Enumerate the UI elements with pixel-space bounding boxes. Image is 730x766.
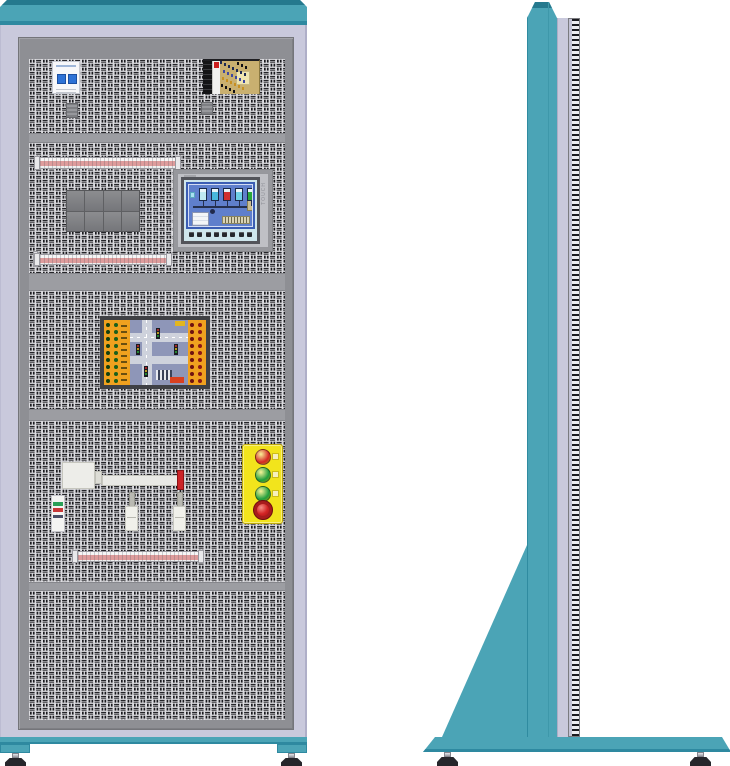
terminal-led-dot [106, 365, 110, 369]
terminal-led-dot [106, 351, 110, 355]
board-right-terminal-strip [188, 320, 206, 385]
leveling-foot-left [5, 758, 26, 766]
board-red-tag [170, 377, 184, 383]
din-connector-2 [201, 102, 213, 115]
psu-board [220, 61, 259, 94]
limit-switch-lever [129, 492, 135, 507]
traffic-light-icon [136, 344, 140, 355]
side-column [527, 2, 557, 738]
terminal-led-dot [198, 337, 202, 341]
touch-panel-hmi: TOUCH [177, 173, 269, 248]
traffic-trainer-board [100, 316, 210, 389]
terminal-strip-bottom [73, 551, 203, 562]
psu-component [243, 80, 245, 83]
traffic-light-icon [174, 344, 178, 355]
terminal-led-dot [114, 323, 118, 327]
psu-component [221, 84, 223, 87]
side-leveling-foot-left [437, 757, 458, 766]
hmi-side-label: TOUCH [261, 182, 267, 205]
breaker-toggle [57, 74, 66, 84]
psu-component [237, 62, 239, 65]
terminal-led-dot [198, 323, 202, 327]
signal-dot [137, 351, 139, 353]
cabinet-body: TOUCH [0, 25, 307, 737]
board-intersection-area [130, 320, 188, 385]
psu-component [224, 63, 226, 66]
corner-block-left [0, 744, 30, 753]
din-connector [66, 103, 78, 118]
terminal-led-dot [198, 358, 202, 362]
cabinet-top-cap [0, 0, 307, 25]
mimic-pump-icon [210, 209, 215, 214]
terminal-led-dot [190, 344, 194, 348]
button-label-window [272, 471, 279, 478]
terminal-led-dot [190, 372, 194, 376]
panel-rail [29, 133, 285, 143]
mounting-panel: TOUCH [29, 59, 285, 720]
perforation-edge-rungs [572, 19, 579, 736]
red-pushbutton [255, 449, 271, 465]
terminal-led-dot [198, 379, 202, 383]
psu-component [225, 86, 227, 89]
psu-component [230, 81, 232, 84]
panel-section-actuator [29, 421, 285, 582]
psu-component [241, 64, 243, 67]
switching-power-supply [203, 59, 260, 94]
leveling-foot-right [281, 758, 302, 766]
terminal-led-dot [198, 365, 202, 369]
contactor-cell [67, 191, 84, 211]
terminal-led-dot [190, 379, 194, 383]
terminal-led-dot [114, 344, 118, 348]
hmi-function-key [222, 232, 227, 237]
terminal-led-dot [190, 365, 194, 369]
traffic-light-icon [144, 366, 148, 377]
psu-component [228, 65, 230, 68]
terminal-led-dot [114, 365, 118, 369]
mimic-tank [211, 188, 219, 201]
cabinet-side-view [400, 0, 730, 766]
terminal-led-dot [114, 337, 118, 341]
terminal-led-dot [114, 351, 118, 355]
terminal-led-dot [198, 351, 202, 355]
terminal-led-dot [114, 372, 118, 376]
limit-switch-2 [173, 506, 186, 531]
signal-dot [145, 367, 147, 369]
side-leveling-screw-right [697, 752, 704, 757]
psu-component [236, 69, 238, 72]
estop-head [257, 504, 269, 516]
psu-component [235, 76, 237, 79]
breaker-toggle-2 [68, 74, 77, 84]
green-pushbutton [255, 467, 271, 483]
signal-dot [175, 345, 177, 347]
pushbutton-station [242, 444, 283, 524]
road-horizontal-2 [130, 356, 188, 364]
terminal-led-dot [106, 323, 110, 327]
psu-component [240, 71, 242, 74]
terminal-led-dot [190, 351, 194, 355]
leveling-screw-right [288, 753, 295, 758]
psu-component [234, 83, 236, 86]
mimic-tank [223, 188, 231, 201]
sensor-module [51, 495, 65, 532]
terminal-led-dot [114, 330, 118, 334]
psu-logo [214, 62, 219, 68]
mimic-pipe-line [193, 206, 253, 208]
mimic-detail-box [192, 212, 209, 226]
mimic-terminal-row [222, 216, 250, 224]
leveling-screw-left [12, 753, 19, 758]
terminal-led-dot [106, 330, 110, 334]
psu-component [222, 77, 224, 80]
panel-section-empty [29, 591, 285, 720]
traffic-light-icon [156, 328, 160, 339]
hmi-function-key [206, 232, 211, 237]
psu-component [220, 61, 222, 64]
psu-component [227, 72, 229, 75]
actuator-rod [102, 475, 179, 486]
actuator-end-marker [177, 470, 184, 490]
hmi-function-key [247, 232, 252, 237]
contactor-cell [122, 212, 139, 232]
breaker-brand-band [56, 65, 76, 67]
hmi-inner-frame [184, 180, 257, 241]
psu-component [226, 79, 228, 82]
psu-component [245, 66, 247, 69]
contactor-group [66, 190, 140, 232]
side-panel-edge [568, 18, 580, 737]
hmi-function-key [197, 232, 202, 237]
limit-switch-lever-2 [177, 492, 183, 507]
hmi-function-key [214, 232, 219, 237]
hmi-bezel-frame [181, 177, 260, 244]
psu-component [238, 85, 240, 88]
panel-rail-2 [29, 273, 285, 291]
linear-actuator-body [62, 462, 95, 489]
limit-switch [125, 506, 138, 531]
psu-component [244, 73, 246, 76]
side-leveling-foot-right [690, 757, 711, 766]
actuator-flange [95, 471, 102, 484]
terminal-led-dot [198, 330, 202, 334]
terminal-led-dot [114, 358, 118, 362]
signal-dot [175, 348, 177, 350]
emergency-stop-button [253, 500, 273, 520]
contactor-cell [104, 212, 121, 232]
equipment-illustration: TOUCH [0, 0, 730, 766]
hmi-function-keys [186, 230, 255, 239]
button-label-window [272, 453, 279, 460]
terminal-led-dot [198, 372, 202, 376]
terminal-led-dot [106, 372, 110, 376]
cabinet-bottom-strip [0, 737, 307, 744]
signal-dot [157, 332, 159, 334]
panel-rail-3 [29, 409, 285, 421]
cabinet-front-view: TOUCH [0, 0, 308, 766]
psu-terminal-block [203, 61, 212, 94]
psu-component [223, 70, 225, 73]
psu-component [242, 87, 244, 90]
contactor-cell [85, 191, 102, 211]
mimic-tank [199, 188, 207, 201]
psu-component [231, 74, 233, 77]
contactor-cell [104, 191, 121, 211]
terminal-strip-top [35, 157, 180, 169]
signal-dot [137, 345, 139, 347]
signal-dot [145, 373, 147, 375]
contactor-cell [85, 212, 102, 232]
side-base-plate [423, 737, 730, 752]
side-column-cap [527, 2, 557, 8]
signal-dot [157, 329, 159, 331]
board-yellow-tag [175, 321, 185, 326]
hmi-function-key [230, 232, 235, 237]
corner-block-right [277, 744, 307, 753]
terminal-led-dot [190, 358, 194, 362]
psu-component [232, 67, 234, 70]
terminal-led-dot [190, 337, 194, 341]
side-panel-spacer [557, 18, 568, 737]
cap-top-edge [0, 0, 307, 5]
panel-rail-4 [29, 582, 285, 591]
button-label-window [272, 490, 279, 497]
contactor-cell [122, 191, 139, 211]
mimic-tank [247, 188, 253, 201]
terminal-led-dot [106, 379, 110, 383]
panel-section-control: TOUCH [29, 143, 285, 273]
board-label-column [121, 325, 127, 381]
panel-section-board [29, 291, 285, 409]
psu-component [233, 90, 235, 93]
terminal-led-dot [106, 337, 110, 341]
hmi-screen-mimic [188, 184, 253, 227]
panel-frame: TOUCH [18, 37, 294, 730]
signal-dot [175, 351, 177, 353]
hmi-screen [186, 182, 255, 229]
circuit-breaker [52, 61, 80, 94]
hmi-function-key [239, 232, 244, 237]
side-support-gusset [442, 545, 527, 737]
terminal-led-dot [114, 379, 118, 383]
hmi-function-key [189, 232, 194, 237]
signal-dot [137, 348, 139, 350]
mimic-tank [235, 188, 243, 201]
psu-label-strip [212, 61, 220, 94]
terminal-led-dot [198, 344, 202, 348]
terminal-led-dot [190, 323, 194, 327]
terminal-led-dot [190, 330, 194, 334]
psu-component [229, 88, 231, 91]
panel-section-power [29, 59, 285, 133]
signal-dot [157, 335, 159, 337]
contactor-cell [67, 212, 84, 232]
side-leveling-screw-left [444, 752, 451, 757]
terminal-led-dot [106, 358, 110, 362]
signal-dot [145, 370, 147, 372]
terminal-led-dot [106, 344, 110, 348]
terminal-strip-mid [35, 254, 171, 265]
psu-component [239, 78, 241, 81]
mimic-side-block [190, 192, 195, 198]
